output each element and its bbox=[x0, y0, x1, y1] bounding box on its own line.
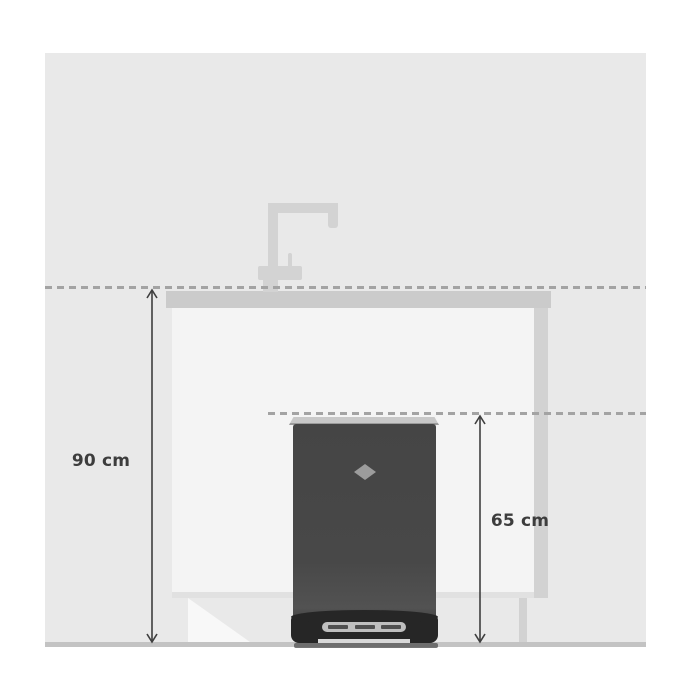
cabinet-side-panel bbox=[534, 308, 548, 598]
dimension-line-counter-height bbox=[145, 288, 159, 644]
bin-pedal bbox=[322, 622, 406, 632]
countertop bbox=[166, 291, 551, 308]
pedal-slot bbox=[381, 625, 401, 629]
bin-floor-shadow bbox=[294, 643, 438, 648]
dimension-diagram: 90 cm 65 cm bbox=[0, 0, 700, 700]
counter-height-label: 90 cm bbox=[61, 451, 141, 471]
kickspace-right-edge bbox=[519, 598, 527, 642]
faucet-spout bbox=[328, 203, 338, 228]
bin-height-reference-line bbox=[268, 412, 646, 415]
pedal-slot bbox=[328, 625, 348, 629]
counter-height-reference-line bbox=[45, 286, 646, 289]
faucet-handle bbox=[288, 253, 292, 267]
bin-body bbox=[293, 424, 436, 620]
pedal-slot bbox=[355, 625, 375, 629]
bin-height-label: 65 cm bbox=[480, 511, 560, 531]
faucet-base bbox=[258, 266, 302, 280]
